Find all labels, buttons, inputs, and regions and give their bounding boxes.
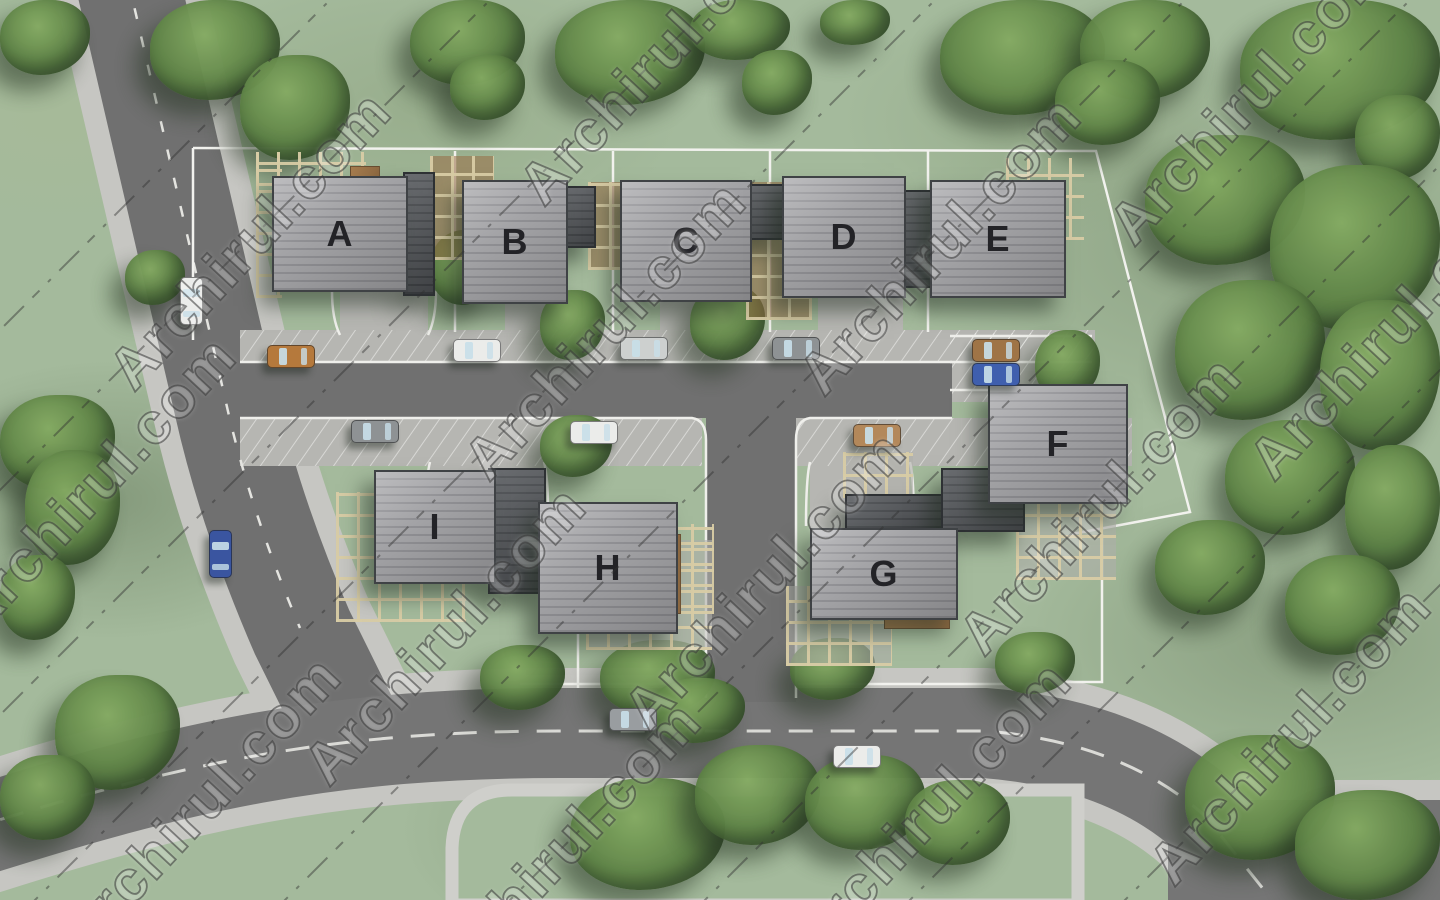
car-white xyxy=(570,421,618,444)
building-label-d: D xyxy=(784,178,904,296)
building-label-e: E xyxy=(932,182,1064,296)
building-label-f: F xyxy=(990,386,1126,502)
building-g: G xyxy=(810,528,958,620)
building-h: H xyxy=(538,502,678,634)
car-gray xyxy=(772,337,820,360)
car-gray xyxy=(351,420,399,443)
car-white xyxy=(453,339,501,362)
building-b: B xyxy=(462,180,568,304)
site-plan-render: A B C D E F G H I xyxy=(0,0,1440,900)
building-label-b: B xyxy=(464,182,566,302)
building-f: F xyxy=(988,384,1128,504)
building-c: C xyxy=(620,180,752,302)
building-e: E xyxy=(930,180,1066,298)
car-blue xyxy=(972,363,1020,386)
car-white xyxy=(833,745,881,768)
garage-roof xyxy=(748,184,786,240)
building-label-i: I xyxy=(376,472,494,582)
building-label-a: A xyxy=(274,178,406,290)
car-silver xyxy=(620,337,668,360)
car-blue xyxy=(209,530,232,578)
garage-roof xyxy=(845,494,951,532)
car-brown xyxy=(972,339,1020,362)
pergola-trellis xyxy=(843,452,913,498)
building-label-h: H xyxy=(540,504,676,632)
building-label-c: C xyxy=(622,182,750,300)
car-orange xyxy=(267,345,315,368)
car-white xyxy=(180,277,203,325)
building-d: D xyxy=(782,176,906,298)
building-i: I xyxy=(374,470,496,584)
car-tan xyxy=(853,424,901,447)
building-label-g: G xyxy=(812,530,956,618)
car-gray xyxy=(609,708,657,731)
building-a: A xyxy=(272,176,408,292)
